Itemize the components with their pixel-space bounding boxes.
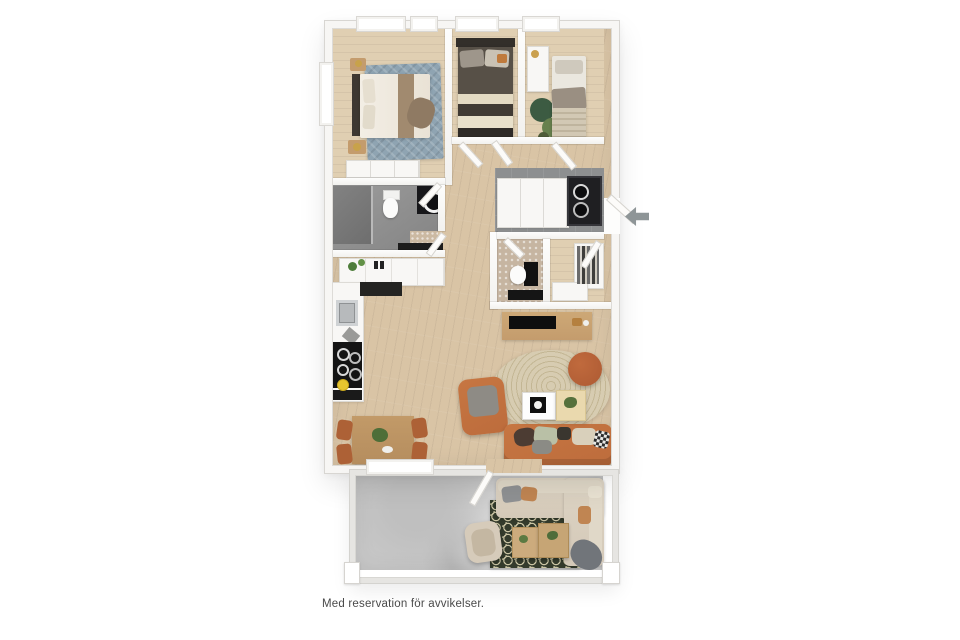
balcony-door-opening (486, 459, 542, 473)
bedroom-3-window (522, 16, 560, 32)
disclaimer-caption: Med reservation för avvikelser. (322, 598, 484, 610)
bedroom-1-window-a (356, 16, 406, 32)
bedroom-2-window (455, 16, 499, 32)
dining-window (366, 459, 434, 475)
floorplan-render: Med reservation för avvikelser. (0, 0, 960, 640)
bedroom-1-side-window (319, 62, 334, 126)
apartment-outer-walls (325, 21, 619, 473)
balcony-post-right (602, 562, 620, 584)
balcony-post-left (344, 562, 360, 584)
bedroom-1-window-b (410, 16, 438, 32)
